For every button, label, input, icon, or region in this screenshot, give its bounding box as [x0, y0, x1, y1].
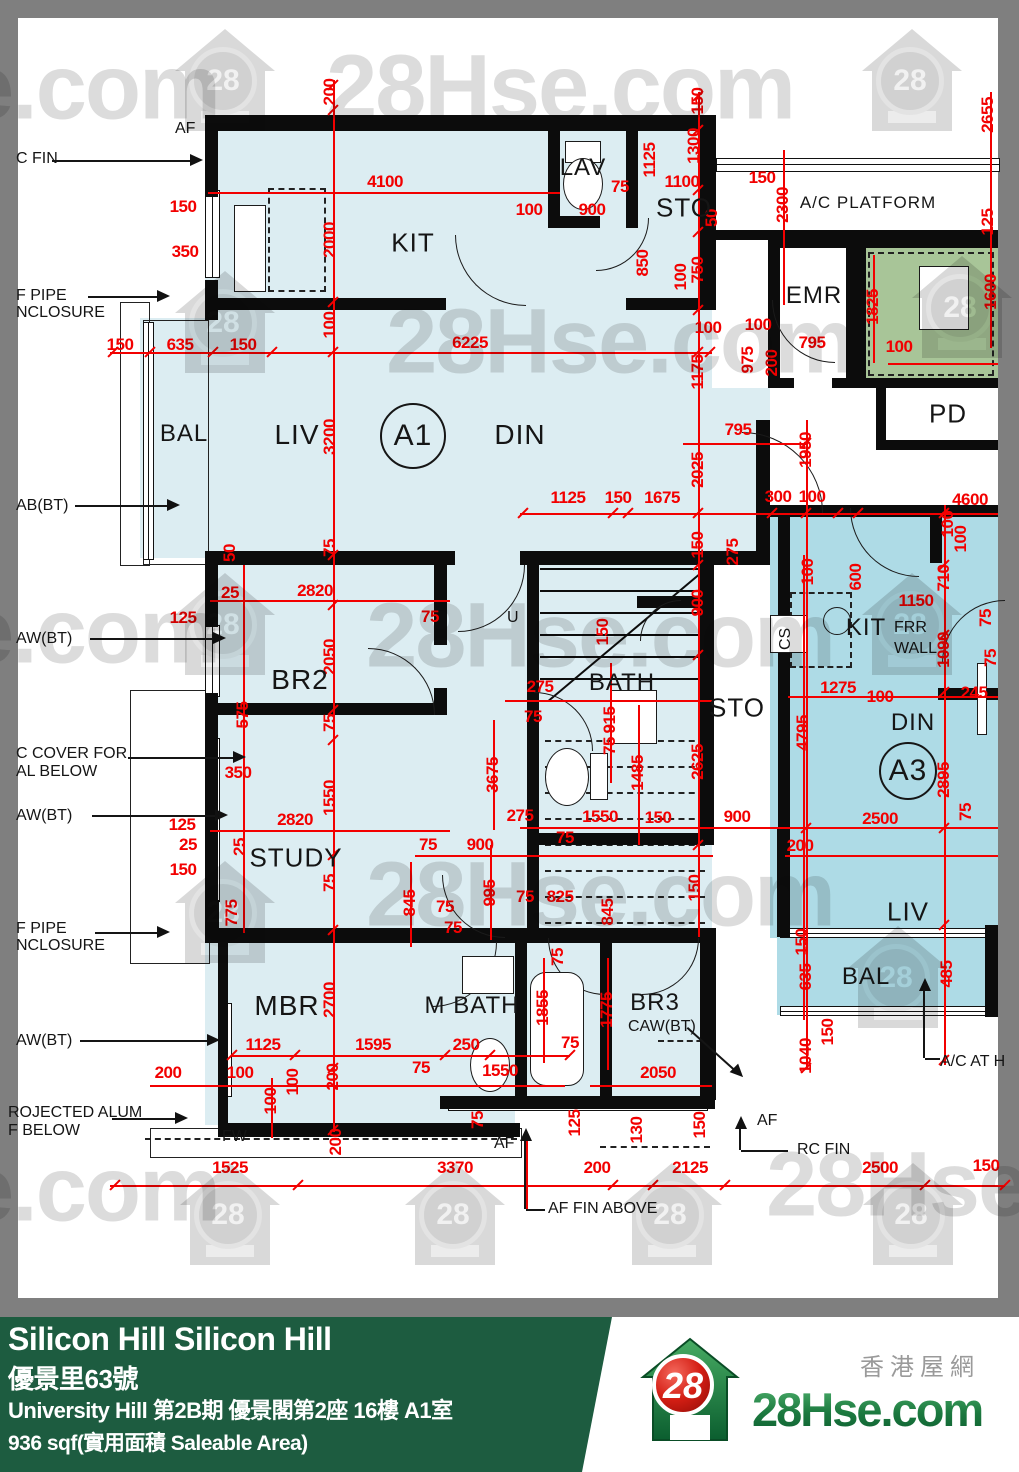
dimension-line — [110, 352, 712, 354]
dimension-label: 750 — [688, 257, 708, 284]
dimension-label: 1125 — [640, 143, 660, 178]
fixture — [590, 753, 608, 800]
dimension-label: 2500 — [862, 809, 898, 829]
dimension-label: 845 — [400, 890, 420, 917]
leader-arrowhead — [919, 972, 931, 991]
dimension-label: 200 — [155, 1063, 182, 1083]
dimension-label: 1595 — [355, 1035, 391, 1055]
dimension-label: 200 — [323, 1064, 343, 1091]
dimension-label: 1825 — [863, 289, 883, 325]
wall-segment — [768, 378, 794, 388]
annotation-label: CAW(BT) — [628, 1018, 696, 1036]
annotation-label: U — [507, 609, 519, 627]
dashed-fixture-outline — [268, 188, 326, 292]
dimension-label: 25 — [179, 835, 197, 855]
window — [205, 190, 220, 278]
dimension-label: 100 — [671, 264, 691, 291]
dimension-label: 1300 — [684, 128, 704, 164]
dimension-label: 915 — [600, 707, 620, 734]
window — [780, 928, 995, 938]
dimension-label: 710 — [934, 565, 954, 592]
dimension-label: 150 — [107, 335, 134, 355]
dimension-label: 1485 — [628, 755, 648, 791]
room-label-bath: BATH — [589, 669, 655, 697]
dimension-label: 635 — [796, 964, 816, 991]
dimension-label: 200 — [320, 79, 340, 106]
dimension-label: 150 — [645, 808, 672, 828]
annotation-label: WALL — [894, 640, 937, 658]
wall-segment — [205, 280, 218, 320]
dimension-label: 150 — [818, 1019, 838, 1046]
dimension-label: 1550 — [582, 807, 618, 827]
dimension-label: 795 — [799, 333, 826, 353]
dimension-line — [243, 565, 245, 933]
annotation-label: C FIN — [16, 150, 58, 168]
stair-tread-dashed — [545, 870, 705, 872]
unit-badge-a1: A1 — [380, 403, 446, 469]
room-label-m-bath: M BATH — [425, 992, 520, 1020]
dimension-label: 100 — [951, 526, 971, 553]
dimension-line — [888, 363, 998, 365]
dimension-label: 75 — [981, 649, 1001, 667]
room-label-br3: BR3 — [630, 989, 680, 1017]
dimension-label: 150 — [688, 532, 708, 559]
dimension-label: 3200 — [320, 419, 340, 455]
dimension-line — [783, 150, 785, 305]
dimension-label: 3675 — [483, 757, 503, 793]
dimension-label: 250 — [453, 1035, 480, 1055]
dimension-label: 200 — [762, 350, 782, 377]
dimension-label: 150 — [690, 1112, 710, 1139]
dimension-label: 795 — [725, 420, 752, 440]
dimension-label: 4795 — [793, 715, 813, 751]
dimension-label: 100 — [283, 1069, 303, 1096]
dimension-label: 350 — [225, 763, 252, 783]
room-label-mbr: MBR — [254, 990, 319, 1022]
dimension-label: 900 — [724, 807, 751, 827]
dimension-label: 150 — [170, 197, 197, 217]
dimension-label: 75 — [524, 707, 542, 727]
leader-line — [925, 1058, 940, 1060]
stair-tread-dashed — [545, 818, 705, 820]
dimension-label: 150 — [170, 860, 197, 880]
leader-line — [526, 1209, 545, 1211]
annotation-label: F BELOW — [8, 1122, 80, 1140]
fixture — [545, 748, 589, 806]
dimension-label: 1175 — [688, 355, 708, 390]
dimension-label: 75 — [556, 828, 574, 848]
dimension-label: 75 — [412, 1058, 430, 1078]
dimension-label: 900 — [688, 590, 708, 617]
room-label-pd: PD — [929, 399, 967, 430]
dimension-label: 100 — [516, 200, 543, 220]
dimension-line — [683, 443, 808, 445]
dimension-label: 75 — [421, 607, 439, 627]
dimension-label: 4100 — [367, 172, 403, 192]
leader-arrowhead — [215, 809, 234, 821]
dimension-label: 125 — [170, 608, 197, 628]
dimension-label: 100 — [867, 687, 894, 707]
dimension-label: 75 — [561, 1033, 579, 1053]
dimension-label: 1550 — [482, 1061, 518, 1081]
leader-line — [741, 1150, 788, 1152]
annotation-label: AW(BT) — [16, 807, 72, 825]
room-label-liv: LIV — [887, 897, 929, 928]
fixture — [234, 205, 266, 292]
dimension-label: 50 — [220, 544, 240, 562]
stair-tread — [540, 656, 708, 658]
annotation-label: RC FIN — [797, 1141, 850, 1159]
dimension-label: 100 — [798, 559, 818, 586]
dimension-label: 2500 — [862, 1158, 898, 1178]
leader-arrowhead — [735, 1110, 747, 1129]
dimension-line — [520, 827, 998, 829]
dimension-label: 150 — [973, 1156, 1000, 1176]
leader-line — [740, 1128, 742, 1150]
dimension-line — [590, 1085, 712, 1087]
dimension-label: 200 — [584, 1158, 611, 1178]
dimension-line — [785, 855, 998, 857]
annotation-label: AW(BT) — [16, 1032, 72, 1050]
dimension-label: 2125 — [672, 1158, 708, 1178]
dimension-label: 1150 — [899, 591, 934, 611]
dimension-label: 75 — [320, 714, 340, 732]
room-label-a-c-platform: A/C PLATFORM — [800, 193, 936, 213]
dimension-line — [415, 855, 713, 857]
dimension-label: 1040 — [796, 1038, 816, 1074]
stair-tread-dashed — [545, 922, 705, 924]
dimension-line — [505, 700, 712, 702]
dimension-label: 100 — [745, 315, 772, 335]
dimension-label: 75 — [468, 1111, 488, 1129]
annotation-label: AF — [757, 1112, 777, 1130]
dimension-label: 75 — [320, 874, 340, 892]
room-label-sto: STO — [656, 193, 712, 224]
dimension-label: 775 — [222, 900, 242, 927]
wall-segment — [205, 115, 716, 131]
wall-segment — [856, 378, 998, 388]
dimension-label: 1600 — [981, 274, 1001, 310]
dimension-label: 125 — [565, 1110, 585, 1137]
annotation-label: F PIPE — [16, 920, 67, 938]
dimension-label: 1525 — [212, 1158, 248, 1178]
dimension-label: 150 — [792, 929, 812, 956]
wall-segment — [985, 925, 998, 1017]
annotation-label: AF — [175, 120, 195, 138]
wall-segment — [434, 565, 447, 645]
brand-logo: 28 香港屋網 28Hse.com — [640, 1337, 1010, 1467]
fixture — [462, 956, 514, 994]
dimension-label: 900 — [467, 835, 494, 855]
dimension-label: 150 — [605, 488, 632, 508]
wall-segment — [205, 565, 218, 627]
footer-info-panel: Silicon Hill Silicon Hill 優景里63號 Univers… — [0, 1317, 660, 1472]
dimension-label: 275 — [507, 806, 534, 826]
leader-arrowhead — [233, 751, 252, 763]
stair-tread — [540, 590, 708, 592]
room-label-din: DIN — [891, 709, 935, 737]
dimension-line — [232, 1055, 570, 1057]
room-label-liv: LIV — [274, 419, 319, 451]
svg-text:28: 28 — [662, 1365, 703, 1406]
dimension-label: 1675 — [644, 488, 680, 508]
brand-name: 28Hse.com — [752, 1382, 982, 1437]
leader-line — [88, 296, 160, 298]
dimension-label: 2000 — [320, 222, 340, 258]
room-label-emr: EMR — [786, 282, 842, 310]
dimension-label: 75 — [600, 737, 620, 755]
property-address-zh: 優景里63號 — [8, 1359, 138, 1396]
wall-segment — [876, 440, 998, 450]
dimension-label: 635 — [167, 335, 194, 355]
dimension-label: 1275 — [820, 678, 856, 698]
wall-segment — [778, 517, 790, 837]
dimension-label: 150 — [749, 168, 776, 188]
stair-tread — [540, 612, 708, 614]
dimension-label: 75 — [548, 948, 568, 966]
dimension-label: 2655 — [978, 97, 998, 133]
wall-segment — [205, 713, 218, 903]
dimension-label: 100 — [261, 1088, 281, 1115]
leader-arrowhead — [157, 290, 176, 302]
dimension-label: 1090 — [934, 632, 954, 668]
dimension-label: 125 — [978, 209, 998, 236]
dimension-label: 150 — [688, 88, 708, 115]
leader-line — [112, 1118, 178, 1120]
leader-line — [52, 160, 193, 162]
dimension-label: 100 — [799, 487, 826, 507]
dimension-label: 2820 — [277, 810, 313, 830]
dimension-label: 100 — [227, 1063, 254, 1083]
room-label-sto: STO — [709, 693, 765, 724]
dimension-label: 995 — [480, 880, 500, 907]
dashed-line — [600, 1146, 710, 1148]
leader-line — [90, 638, 216, 640]
dimension-label: 75 — [419, 835, 437, 855]
room-label-lav: LAV — [560, 154, 607, 182]
dimension-label: 2300 — [773, 187, 793, 223]
leader-line — [75, 505, 170, 507]
annotation-label: AL BELOW — [16, 763, 97, 781]
dimension-label: 1100 — [665, 172, 700, 192]
room-label-br2: BR2 — [271, 664, 328, 696]
dimension-label: 2895 — [934, 762, 954, 798]
dimension-label: 275 — [723, 539, 743, 566]
dimension-label: 300 — [765, 487, 792, 507]
wall-segment — [832, 378, 858, 388]
annotation-label: A/C AT H — [940, 1053, 1005, 1071]
leader-arrowhead — [175, 1112, 194, 1124]
footer: Silicon Hill Silicon Hill 優景里63號 Univers… — [0, 1317, 1019, 1472]
dimension-line — [210, 830, 450, 832]
room-label-kit: KIT — [391, 228, 434, 259]
annotation-label: AF FIN ABOVE — [548, 1200, 657, 1218]
dimension-line — [526, 1140, 528, 1210]
dimension-label: 100 — [886, 337, 913, 357]
leader-line — [525, 1140, 527, 1209]
wall-segment — [548, 131, 560, 228]
wall-segment — [700, 928, 716, 1100]
dimension-label: 75 — [436, 897, 454, 917]
room-label-bal: BAL — [842, 963, 890, 991]
dimension-label: 1125 — [246, 1035, 281, 1055]
property-estate-info: University Hill 第2B期 優景閣第2座 16樓 A1室 — [8, 1393, 453, 1425]
annotation-label: AB(BT) — [16, 497, 68, 515]
annotation-label: C COVER FOR — [16, 745, 127, 763]
dimension-label: 4600 — [952, 490, 988, 510]
dimension-label: 100 — [695, 318, 722, 338]
annotation-label: FW — [222, 1128, 247, 1146]
dimension-label: 130 — [627, 1117, 647, 1144]
dimension-line — [150, 1085, 565, 1087]
dimension-label: 150 — [230, 335, 257, 355]
stair-tread — [540, 568, 708, 570]
leader-arrowhead — [213, 632, 232, 644]
dimension-label: 245 — [961, 683, 988, 703]
dimension-label: 125 — [169, 815, 196, 835]
dimension-label: 975 — [738, 347, 758, 374]
brand-tagline-zh: 香港屋網 — [860, 1347, 980, 1382]
property-saleable-area: 936 sqf(實用面積 Saleable Area) — [8, 1427, 308, 1457]
dimension-label: 75 — [444, 918, 462, 938]
dimension-label: 150 — [593, 619, 613, 646]
wall-segment — [716, 230, 998, 240]
leader-line — [924, 990, 926, 1058]
dimension-label: 350 — [172, 242, 199, 262]
annotation-label: AF — [494, 1135, 514, 1153]
annotation-label: FRR — [894, 619, 927, 637]
dimension-label: 1550 — [320, 780, 340, 816]
footer-divider — [0, 1298, 1019, 1317]
dimension-label: 75 — [320, 539, 340, 557]
leader-arrowhead — [190, 154, 209, 166]
leader-line — [95, 932, 160, 934]
room-label-din: DIN — [494, 419, 545, 451]
dimension-label: 275 — [527, 677, 554, 697]
dimension-label: 6225 — [452, 333, 488, 353]
leader-line — [92, 815, 218, 817]
dimension-label: 75 — [956, 803, 976, 821]
dimension-label: 1125 — [551, 488, 586, 508]
property-title: Silicon Hill Silicon Hill — [8, 1321, 332, 1358]
floorplan-image: Silicon Hill Silicon Hill 優景里63號 Univers… — [0, 0, 1019, 1472]
dimension-label: 75 — [611, 177, 629, 197]
window — [780, 1006, 995, 1016]
window — [143, 322, 154, 560]
annotation-label: NCLOSURE — [16, 304, 105, 322]
dimension-label: 825 — [547, 887, 574, 907]
dimension-label: 600 — [846, 564, 866, 591]
dimension-label: 575 — [233, 702, 253, 729]
dimension-label: 25 — [230, 838, 250, 856]
dimension-label: 1775 — [597, 992, 617, 1028]
wall-segment — [876, 388, 886, 446]
dimension-label: 900 — [579, 200, 606, 220]
dimension-label: 850 — [633, 250, 653, 277]
dimension-label: 200 — [787, 836, 814, 856]
wall-segment — [440, 1096, 715, 1109]
dimension-label: 2700 — [320, 982, 340, 1018]
annotation-label: AW(BT) — [16, 630, 72, 648]
dimension-label: 2820 — [297, 581, 333, 601]
dimension-line — [520, 513, 882, 515]
dimension-label: 200 — [326, 1129, 346, 1156]
annotation-label: NCLOSURE — [16, 937, 105, 955]
leader-line — [80, 1040, 210, 1042]
annotation-label: CS — [777, 628, 795, 650]
dimension-label: 1950 — [796, 432, 816, 468]
dimension-line — [110, 1185, 1005, 1187]
room-label-kit: KIT — [846, 614, 886, 642]
annotation-label: F PIPE — [16, 287, 67, 305]
dimension-label: 75 — [976, 609, 996, 627]
dimension-line — [208, 192, 560, 194]
leader-arrowhead — [520, 1122, 532, 1141]
leader-arrowhead — [167, 499, 186, 511]
house-logo-icon: 28 — [640, 1337, 740, 1442]
room-label-bal: BAL — [160, 420, 208, 448]
fixture — [919, 266, 969, 330]
unit-badge-a3: A3 — [879, 742, 937, 800]
dimension-label: 75 — [516, 887, 534, 907]
leader-line — [128, 757, 236, 759]
dimension-label: 485 — [937, 961, 957, 988]
dimension-label: 100 — [320, 312, 340, 339]
dimension-label: 845 — [598, 899, 618, 926]
dimension-label: 150 — [685, 875, 705, 902]
dimension-label: 1855 — [533, 990, 553, 1026]
dimension-label: 2050 — [640, 1063, 676, 1083]
dimension-label: 3370 — [437, 1158, 473, 1178]
room-label-study: STUDY — [249, 843, 342, 874]
leader-arrowhead — [157, 926, 176, 938]
wall-segment — [520, 551, 716, 565]
dimension-label: 25 — [221, 583, 239, 603]
leader-arrowhead — [207, 1034, 226, 1046]
dimension-label: 2625 — [688, 744, 708, 780]
dimension-label: 2025 — [688, 452, 708, 488]
